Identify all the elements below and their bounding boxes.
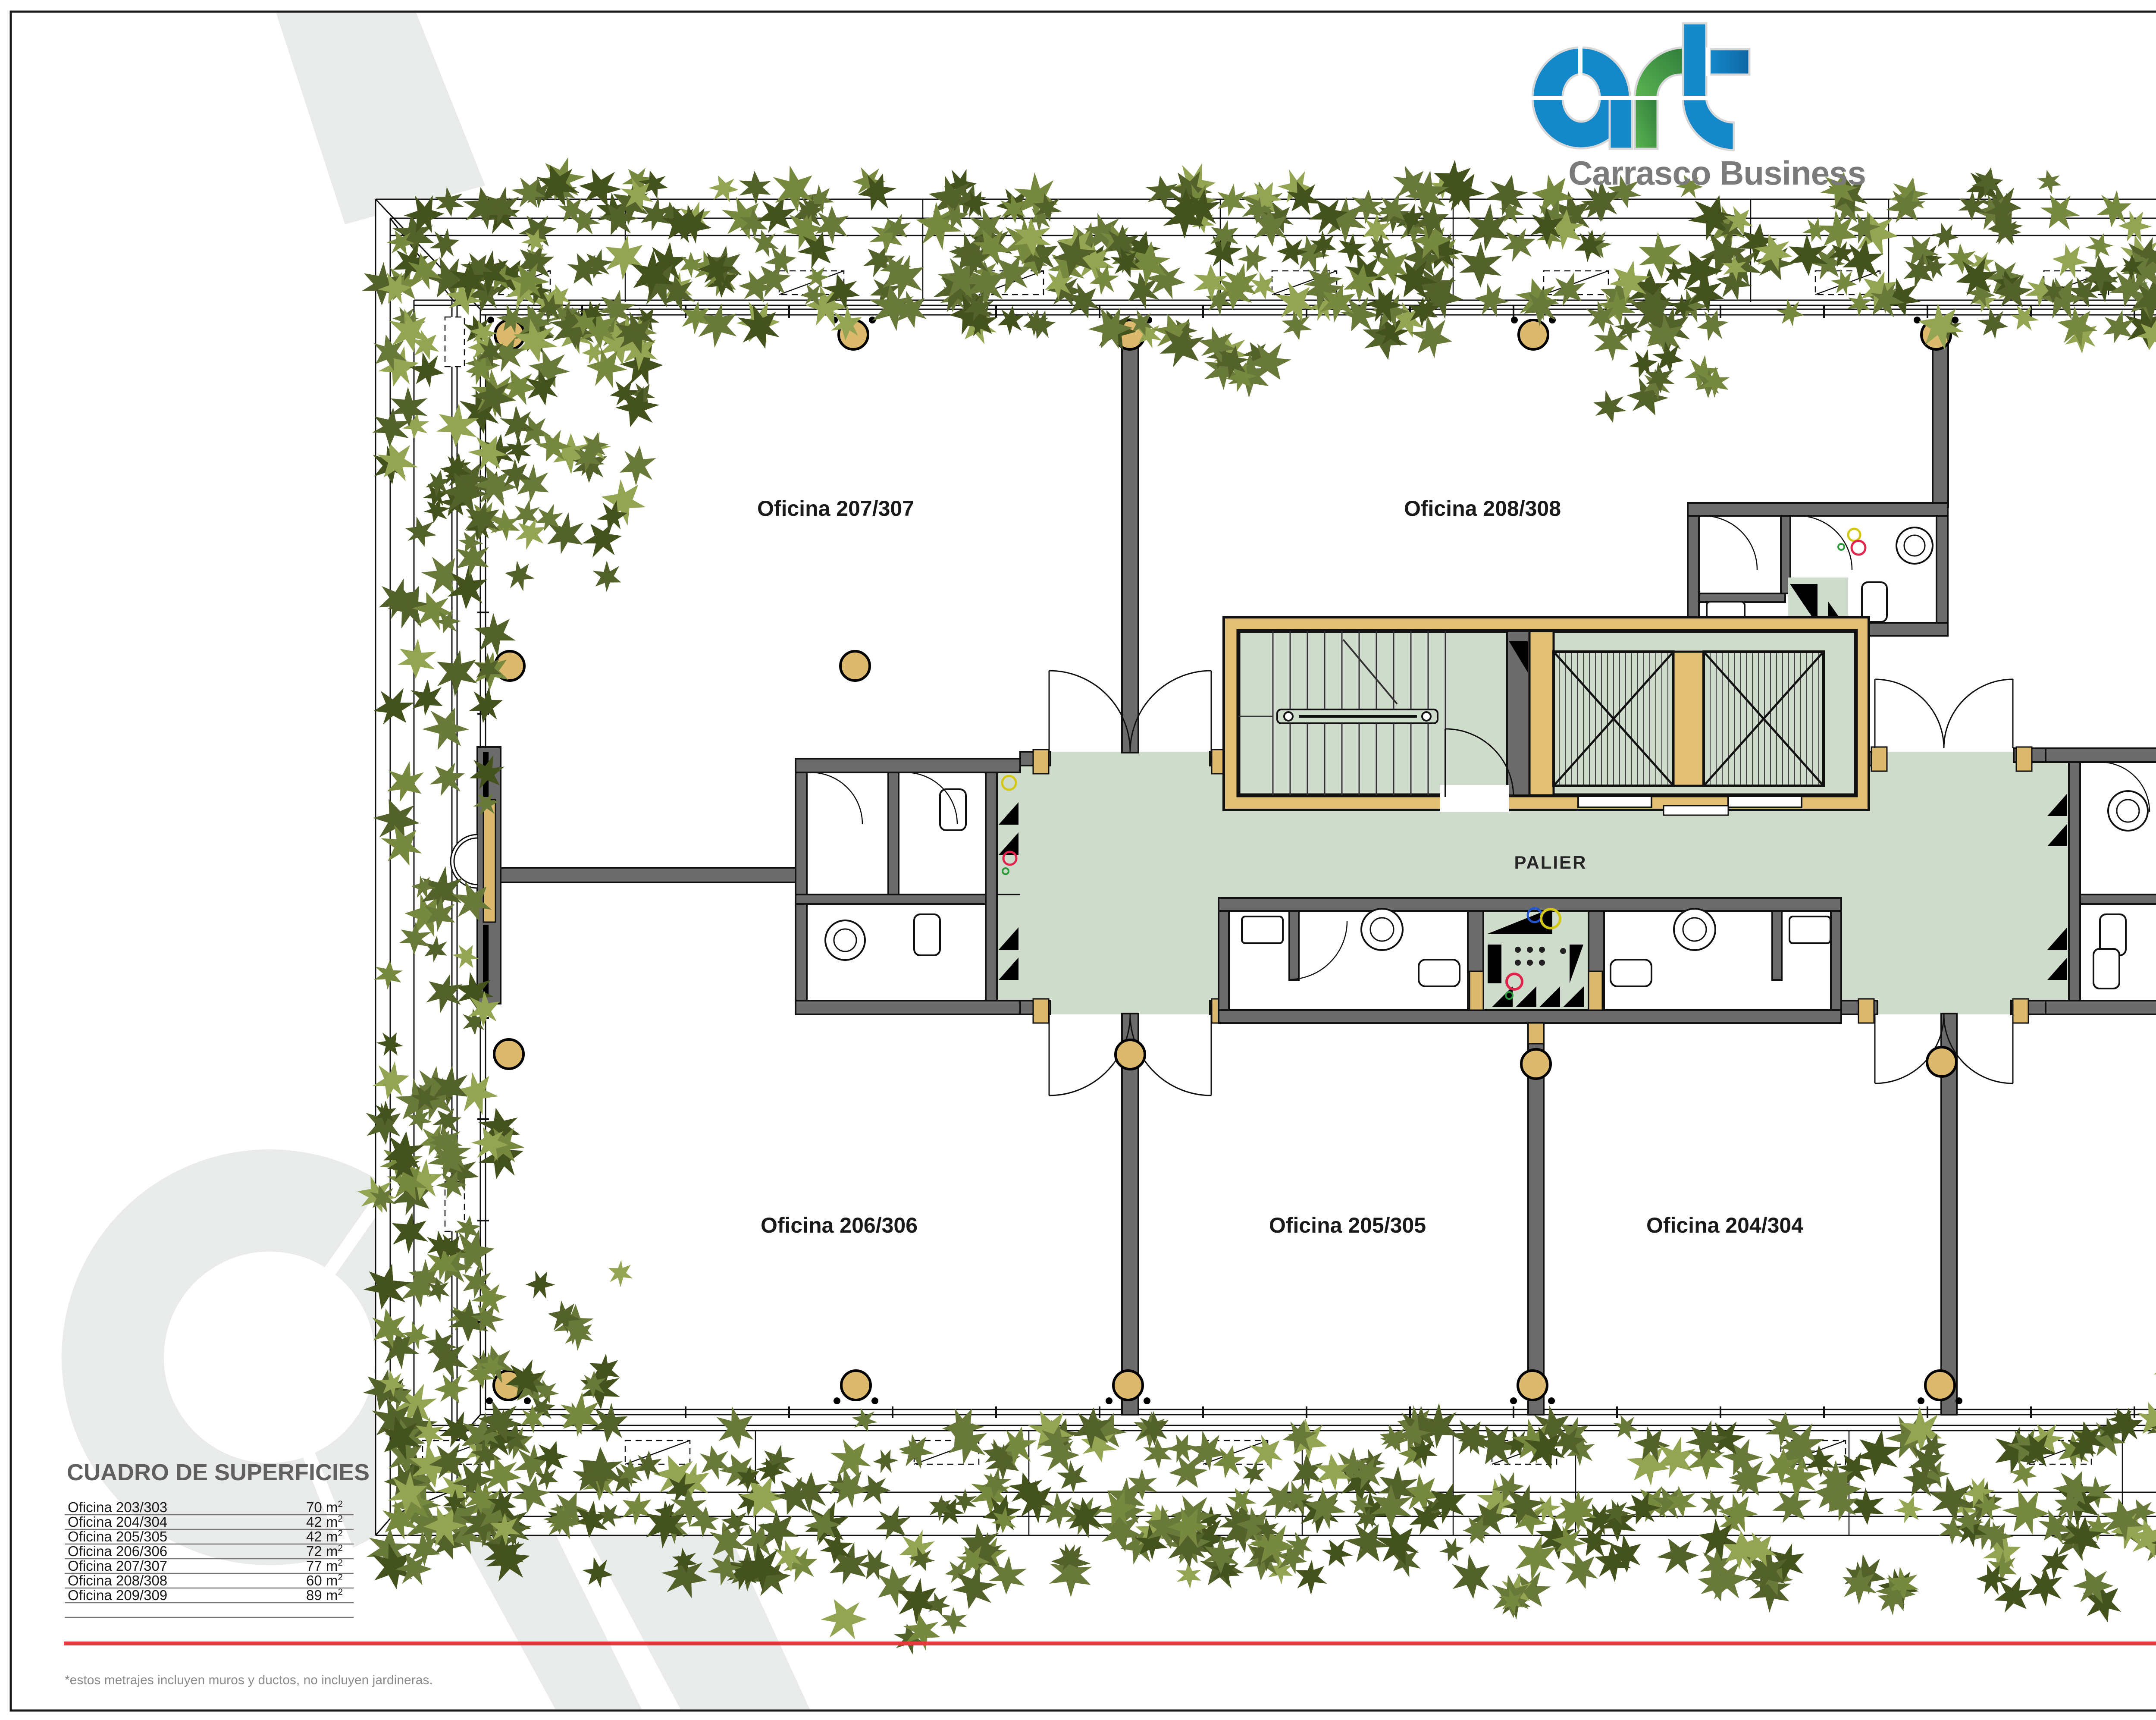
svg-text:Oficina 208/308: Oficina 208/308 — [1404, 496, 1561, 521]
svg-text:Oficina 208/308: Oficina 208/308 — [68, 1572, 167, 1588]
svg-text:Oficina 206/306: Oficina 206/306 — [68, 1543, 167, 1559]
svg-text:Oficina 204/304: Oficina 204/304 — [1646, 1213, 1803, 1237]
svg-text:*estos metrajes incluyen muros: *estos metrajes incluyen muros y ductos,… — [65, 1673, 433, 1687]
svg-text:89 m2: 89 m2 — [306, 1587, 343, 1603]
svg-text:Oficina 205/305: Oficina 205/305 — [1269, 1213, 1426, 1237]
svg-text:Oficina 207/307: Oficina 207/307 — [68, 1558, 167, 1574]
svg-text:Oficina 205/305: Oficina 205/305 — [68, 1529, 167, 1544]
svg-text:60 m2: 60 m2 — [306, 1572, 343, 1588]
svg-text:70 m2: 70 m2 — [306, 1499, 343, 1515]
svg-text:Oficina 204/304: Oficina 204/304 — [68, 1514, 167, 1530]
svg-text:Oficina 203/303: Oficina 203/303 — [68, 1499, 167, 1515]
svg-text:77 m2: 77 m2 — [306, 1558, 343, 1574]
svg-text:Oficina 207/307: Oficina 207/307 — [757, 496, 914, 521]
svg-text:72 m2: 72 m2 — [306, 1543, 343, 1559]
svg-text:Oficina 209/309: Oficina 209/309 — [68, 1587, 167, 1603]
svg-text:42 m2: 42 m2 — [306, 1529, 343, 1544]
svg-text:Carrasco Business: Carrasco Business — [1568, 154, 1866, 192]
svg-text:PALIER: PALIER — [1514, 852, 1587, 873]
svg-text:CUADRO DE SUPERFICIES: CUADRO DE SUPERFICIES — [67, 1459, 370, 1485]
svg-text:42 m2: 42 m2 — [306, 1514, 343, 1530]
svg-text:Oficina 206/306: Oficina 206/306 — [761, 1213, 918, 1237]
